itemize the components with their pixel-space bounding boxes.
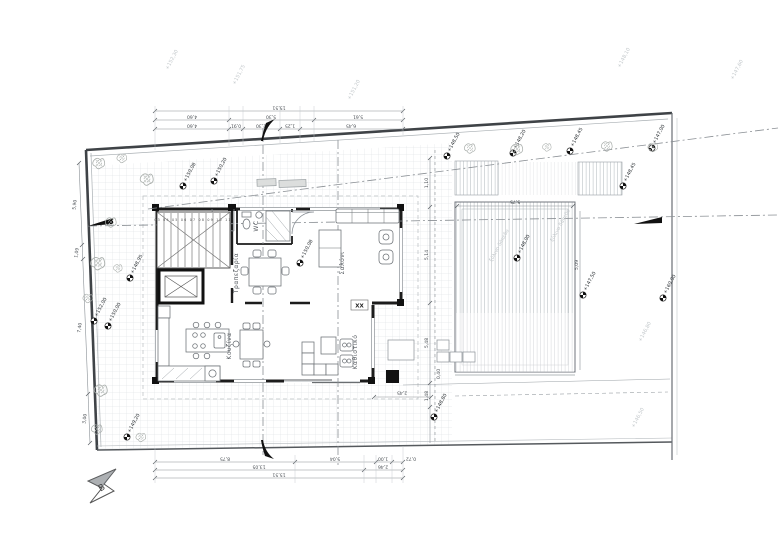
room-label-kitchen: Κουζίνα [226,332,233,359]
level-6: +148,45 [622,162,637,183]
dim-bot-3: 15,51 [272,472,285,478]
dim-left-4: 3,00 [81,413,88,424]
section-label-box: XX [351,300,368,310]
dim-bot-1c: 1,00 [378,456,388,462]
room-label-dining: Τραπεζαρία [233,253,240,294]
dim-top-2a: 4,60 [187,114,197,120]
free-column [386,370,399,383]
dim-top-1: 15,51 [272,105,285,111]
room-label-sitting: Καθιστικό [352,335,359,370]
neighbor-level-1: +151,75 [231,64,246,86]
dimension-text-top: 15,51 4,60 5,30 5,61 4,60 0,91 2,30 1,25… [187,105,363,129]
dim-deck-right: 5,09 [574,260,580,270]
north-arrow: B [88,469,116,503]
neighbor-level-3: +148,10 [616,47,631,69]
dim-right-2: 5,14 [424,250,430,260]
dim-left-2: 1,09 [73,247,80,258]
dim-bot-1a: 8,75 [220,456,230,462]
neighbor-level-4: +147,60 [729,59,744,81]
dim-right-1: 1,10 [424,178,430,188]
level-12: +160,00 [662,274,677,295]
stair-numbers: 03 04 05 06 07 08 09 10 11 [154,218,231,222]
floor-plan-canvas: 15,51 4,60 5,30 5,61 4,60 0,91 2,30 1,25… [0,0,780,549]
elevator [159,270,203,303]
dim-left-1: 5,90 [71,199,78,210]
level-5: +147,00 [651,124,666,145]
dim-top-3a: 4,60 [187,123,197,129]
dim-deck-top: 5,75 [510,199,520,205]
level-15: +147,50 [582,271,597,292]
section-label: XX [355,304,364,310]
staircase: 03 04 05 06 07 08 09 10 11 [154,212,231,268]
dim-top-3e: 6,45 [346,123,356,129]
level-2: +148,50 [446,132,461,153]
dim-top-3b: 0,91 [231,123,241,129]
dim-left-3: 7,40 [76,322,83,333]
room-label-wc: WC [253,220,260,231]
dim-bot-1b: 5,04 [330,456,340,462]
dim-terrace: 2,45 [397,390,407,396]
neighbor-level-6: +146,50 [630,407,645,429]
dim-top-2c: 5,61 [353,114,363,120]
dim-col-offset: 0,40 [436,369,442,379]
dim-right-4: 1,48 [424,391,430,401]
level-4: +148,45 [569,127,584,148]
neighbor-level-0: +152,30 [164,49,179,71]
neighbor-level-5: +146,80 [637,321,652,343]
dim-right-3: 5,48 [424,338,430,348]
dim-top-2b: 5,30 [266,114,276,120]
dimension-text-bottom: 8,75 5,04 1,00 0,72 13,05 2,46 15,51 [220,456,416,478]
wooden-deck [455,161,622,372]
dim-bot-2b: 2,46 [378,464,388,470]
dim-top-3d: 1,25 [285,123,295,129]
room-label-living: Σαλόνι [339,251,346,274]
dim-bot-2a: 13,05 [252,464,265,470]
neighbor-level-2: +151,20 [346,79,361,101]
scan-page: 15,51 4,60 5,30 5,61 4,60 0,91 2,30 1,25… [0,0,780,549]
dim-bot-1d: 0,72 [406,456,416,462]
